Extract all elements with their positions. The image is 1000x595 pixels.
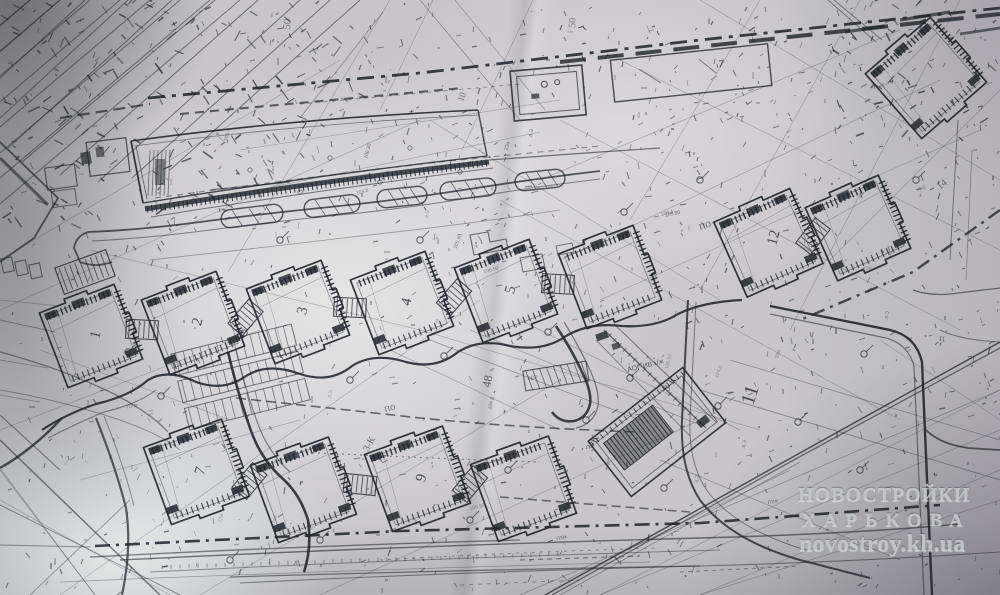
svg-text:ПХм: ПХм <box>556 534 568 543</box>
svg-text:48: 48 <box>479 374 495 389</box>
svg-text:4: 4 <box>398 296 416 308</box>
svg-text:1: 1 <box>87 329 104 340</box>
svg-text:5: 5 <box>502 284 519 295</box>
svg-text:д.Э: д.Э <box>693 474 701 484</box>
svg-text:104.8: 104.8 <box>714 365 724 379</box>
svg-text:14: 14 <box>935 177 950 192</box>
svg-text:по: по <box>383 400 397 415</box>
svg-text:22м: 22м <box>504 140 512 151</box>
svg-text:ПХм: ПХм <box>767 498 779 507</box>
svg-text:105.90: 105.90 <box>469 502 486 512</box>
svg-text:АОГ ИВ к/ж: АОГ ИВ к/ж <box>627 358 665 374</box>
svg-text:д.Э: д.Э <box>741 439 749 449</box>
svg-text:17: 17 <box>164 215 179 231</box>
svg-text:105.60: 105.60 <box>453 233 464 250</box>
svg-text:д.Э: д.Э <box>423 209 431 219</box>
svg-text:106.50: 106.50 <box>664 353 674 370</box>
svg-text:д.Э: д.Э <box>326 389 334 399</box>
svg-text:10: 10 <box>455 90 468 102</box>
svg-text:12: 12 <box>764 228 783 247</box>
svg-text:104.8: 104.8 <box>487 396 496 410</box>
svg-text:22м: 22м <box>217 512 225 523</box>
svg-text:22м: 22м <box>774 348 782 359</box>
svg-text:ПХм: ПХм <box>126 402 138 410</box>
svg-text:д.Э: д.Э <box>917 185 926 193</box>
svg-text:50: 50 <box>567 17 579 28</box>
svg-text:д.Э: д.Э <box>883 310 891 320</box>
svg-text:11: 11 <box>737 382 764 407</box>
svg-text:3: 3 <box>294 305 311 316</box>
svg-text:по: по <box>697 216 713 233</box>
svg-text:22м: 22м <box>862 265 873 273</box>
svg-text:9: 9 <box>413 472 430 483</box>
svg-text:3-К: 3-К <box>584 433 602 454</box>
svg-text:50: 50 <box>281 18 294 31</box>
svg-text:3-К: 3-К <box>661 375 679 394</box>
svg-text:2: 2 <box>189 316 206 327</box>
svg-text:д.Э: д.Э <box>527 128 535 138</box>
svg-text:106.50: 106.50 <box>483 265 500 275</box>
